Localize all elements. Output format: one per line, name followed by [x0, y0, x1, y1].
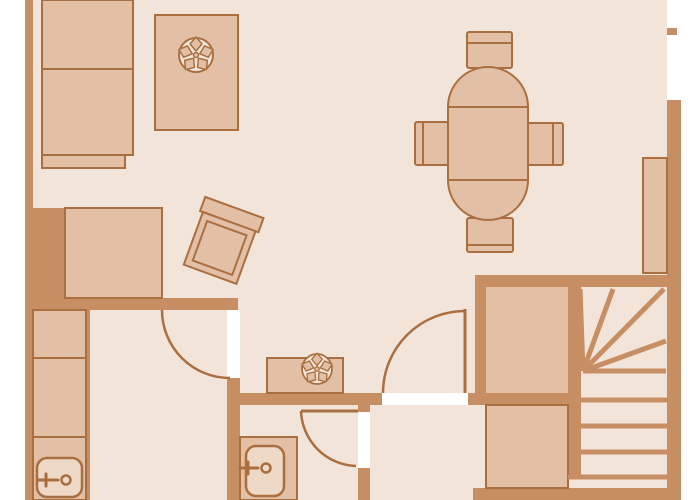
washbasin-1-bowl	[37, 458, 82, 497]
dining-chair-west	[415, 122, 448, 165]
stairs-upper-landing	[486, 287, 568, 393]
wall-vertical-e-top	[358, 405, 370, 412]
floor-plan-canvas	[0, 0, 700, 500]
stair-winder-ray-1	[580, 289, 583, 371]
wall-left-block	[33, 208, 65, 298]
wall-stairs-left	[475, 287, 486, 393]
dining-chair-north	[467, 32, 512, 68]
door-opening-hall	[382, 393, 468, 405]
kitchen-cabinet-lower	[42, 69, 133, 155]
door-opening-bedroom	[227, 310, 240, 378]
washbasin-1-drain	[62, 476, 71, 485]
washbasin-2	[240, 446, 284, 496]
exterior-margin-left	[0, 0, 25, 500]
wall-window-stub	[667, 28, 677, 35]
dining-chair-east	[528, 123, 563, 165]
wall-bottom	[473, 488, 681, 500]
closet-cabinet-1	[33, 310, 86, 358]
washbasin-2-drain	[262, 464, 271, 473]
door-opening-bathroom	[358, 412, 370, 468]
dining-chair-south	[467, 218, 513, 252]
plant-center	[194, 53, 199, 58]
washbasin-1	[37, 458, 82, 497]
kitchen-counter-step	[42, 155, 125, 168]
wall-stairs-top	[475, 275, 681, 287]
sofa	[65, 208, 162, 298]
wall-shelf-east	[643, 158, 667, 273]
dining-table	[448, 67, 528, 220]
exterior-margin-right	[681, 0, 700, 500]
wall-horizontal-a	[25, 298, 238, 310]
plant-center	[315, 367, 319, 371]
floor-plan-page	[0, 0, 700, 500]
wall-left	[25, 0, 33, 500]
stairs-lower-landing	[486, 405, 568, 488]
closet-cabinet-2	[33, 358, 86, 437]
wall-right	[667, 100, 681, 500]
wall-vertical-e-bottom	[358, 468, 370, 500]
kitchen-cabinet-upper	[42, 0, 133, 69]
